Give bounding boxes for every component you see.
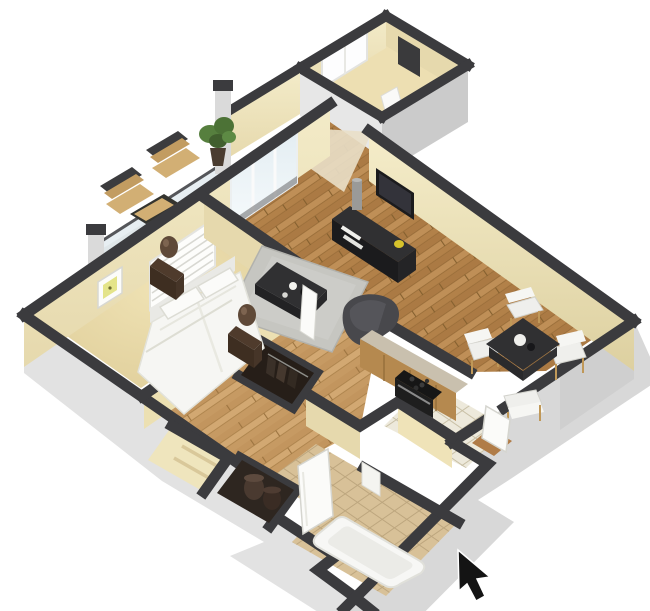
utility-tank-1-top [244, 474, 264, 482]
balcony-post-1-cap [213, 80, 233, 91]
lamp-right [238, 304, 256, 326]
lamp-right-highlight [241, 307, 247, 315]
utility-tank-2-top [263, 487, 281, 494]
floorplan-image[interactable] [0, 0, 650, 611]
lamp-left-highlight [163, 239, 169, 247]
table-cup-2 [282, 292, 288, 298]
table-centerpiece-jug [527, 343, 535, 351]
floorplan-svg [0, 0, 650, 611]
lamp-left [160, 236, 178, 258]
tv-stand-vase [352, 180, 362, 210]
yellow-decor [394, 240, 404, 248]
patio-chair-1 [146, 131, 200, 178]
bedroom-door [300, 285, 317, 340]
table-cup [289, 282, 297, 290]
balcony-post-2-cap [86, 224, 106, 235]
vase-top [352, 178, 362, 182]
table-centerpiece-bowl [514, 334, 526, 346]
